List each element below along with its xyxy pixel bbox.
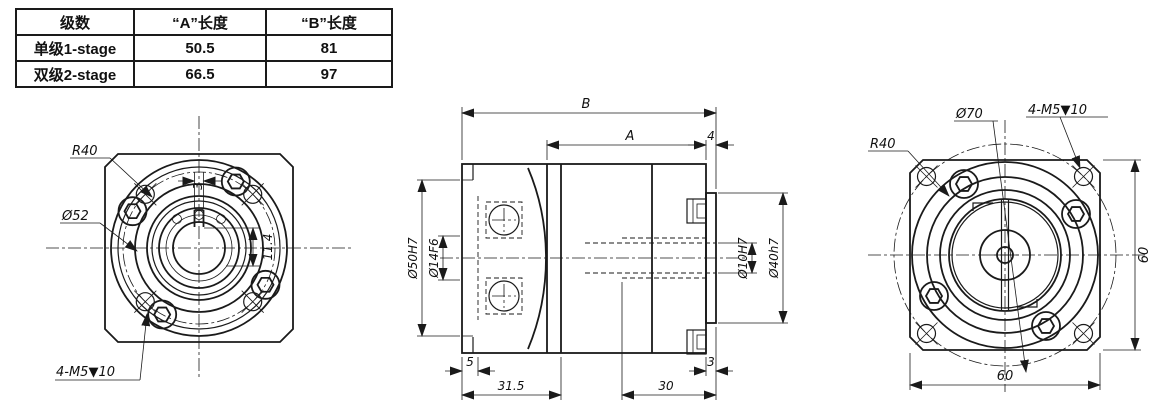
side-dim-d10h7: Ø10H7 (736, 237, 750, 280)
rear-tapped-hole (916, 323, 938, 345)
side-dim-4: 4 (707, 129, 715, 143)
front-keyway-width-dim: 3 (191, 182, 205, 190)
rear-tapped-hole (1073, 323, 1095, 345)
drawing-sheet: 级数 “A”长度 “B”长度 单级1-stage 50.5 81 双级2-sta… (0, 0, 1153, 414)
side-dim-30: 30 (658, 379, 674, 393)
side-dim-b: B (582, 97, 591, 112)
rear-dim-width-60: 60 (997, 369, 1014, 384)
side-dim-5: 5 (466, 355, 474, 369)
side-dim-d14f6: Ø14F6 (427, 238, 441, 279)
front-keyway-height-dim: 11.4 (261, 234, 275, 261)
side-view: B A 4 Ø50H7 Ø14F6 Ø10H7 (406, 97, 788, 400)
rear-tapped-hole (1073, 166, 1095, 188)
front-tap-label: 4-M5▼10 (56, 365, 115, 380)
side-dim-d40h7: Ø40h7 (767, 238, 781, 279)
front-r40-label: R40 (72, 144, 98, 159)
front-d52-label: Ø52 (61, 209, 89, 224)
rear-d70-label: Ø70 (955, 107, 983, 122)
side-body-outline (462, 164, 706, 353)
rear-tap-label: 4-M5▼10 (1028, 103, 1087, 118)
gearbox-drawing: R40 Ø52 4-M5▼10 3 11.4 (0, 0, 1153, 414)
side-dim-31-5: 31.5 (498, 379, 525, 393)
side-dim-a: A (625, 129, 635, 144)
front-view: R40 Ø52 4-M5▼10 3 11.4 (46, 116, 352, 380)
rear-tapped-hole (916, 166, 938, 188)
side-dim-3: 3 (707, 355, 715, 369)
rear-view: R40 Ø70 4-M5▼10 60 60 (868, 103, 1152, 392)
side-dim-d50h7: Ø50H7 (406, 237, 420, 280)
rear-r40-label: R40 (870, 137, 896, 152)
rear-dim-height-60: 60 (1137, 247, 1152, 264)
